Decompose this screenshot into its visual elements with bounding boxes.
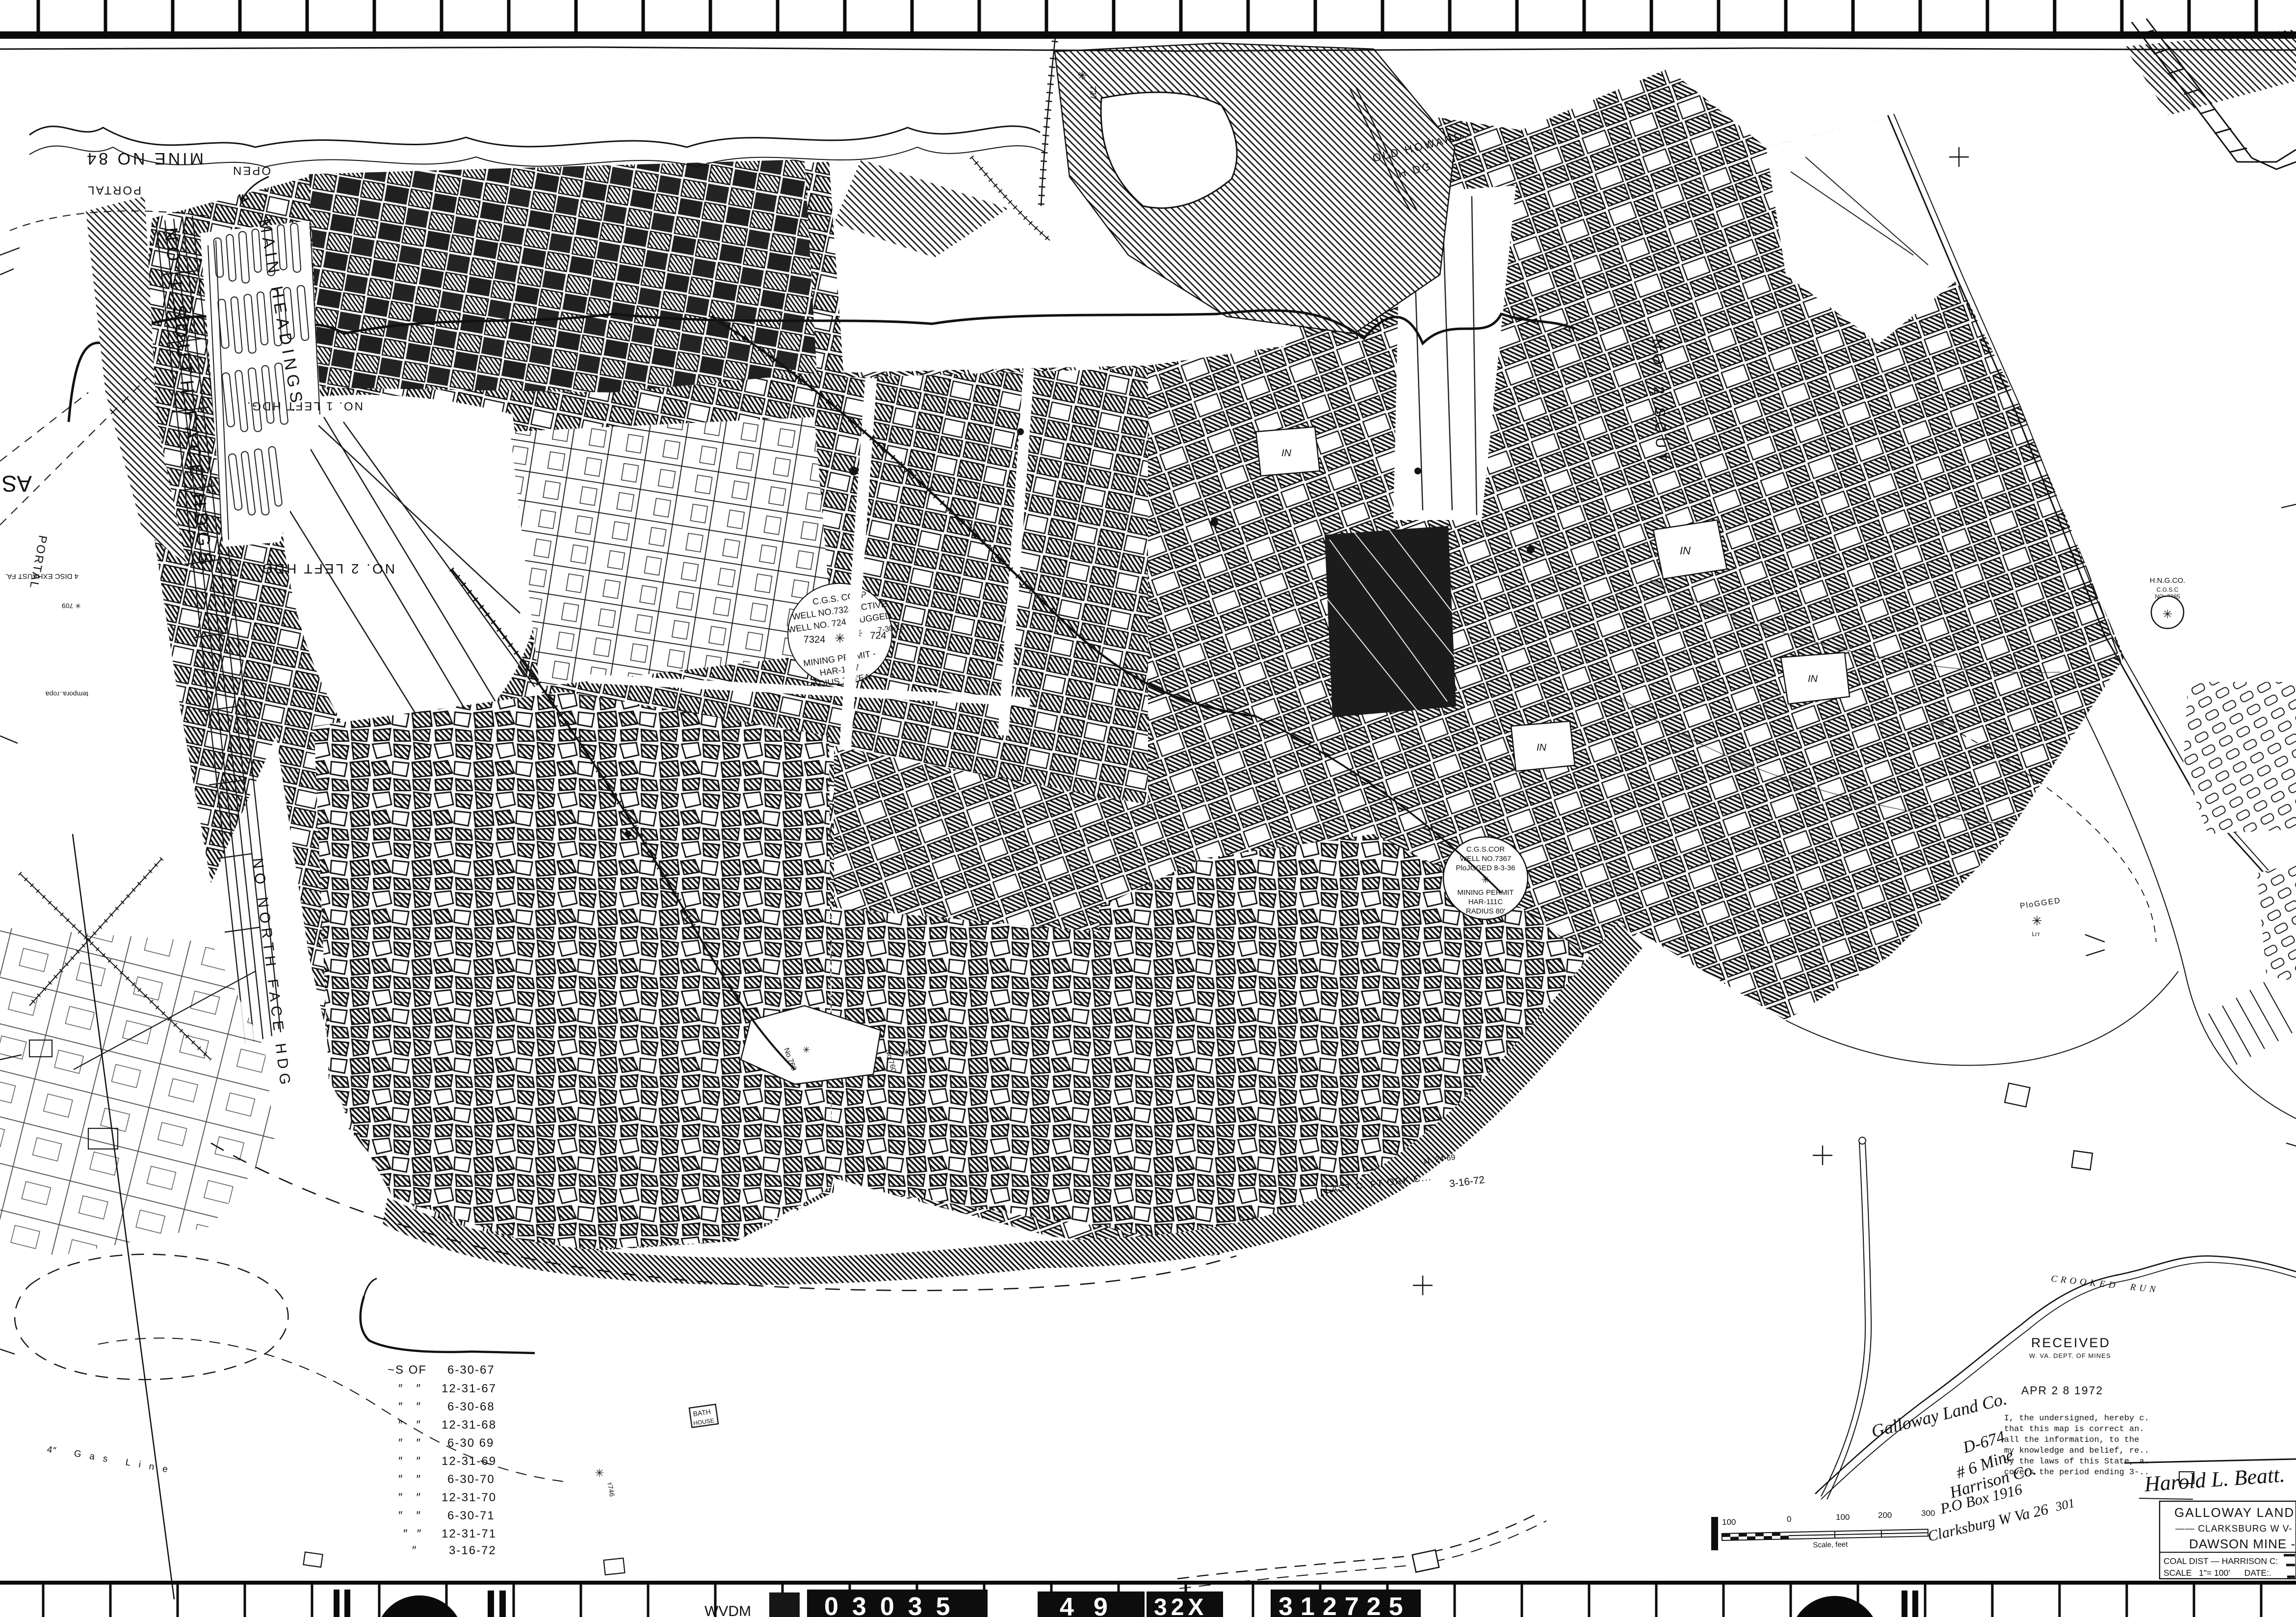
- svg-text:12-31-71: 12-31-71: [442, 1527, 496, 1540]
- svg-text:0: 0: [1787, 1514, 1791, 1524]
- svg-text:IN: IN: [1537, 742, 1547, 753]
- svg-text:NO. 1 LEFT HDG.: NO. 1 LEFT HDG.: [246, 399, 363, 413]
- svg-text:724: 724: [870, 630, 886, 641]
- svg-text:300: 300: [1921, 1509, 1935, 1518]
- svg-text:″ ″: ″ ″: [398, 1382, 421, 1395]
- svg-text:″ ″: ″ ″: [398, 1400, 421, 1413]
- svg-text:✳: ✳: [2163, 608, 2172, 621]
- svg-text:✳: ✳: [803, 1045, 810, 1055]
- svg-text:WVDM: WVDM: [704, 1603, 751, 1617]
- svg-text:DAWSON MINE - 6: DAWSON MINE - 6: [2189, 1537, 2296, 1551]
- svg-text:7324: 7324: [804, 634, 826, 645]
- svg-text:IN: IN: [1680, 545, 1691, 557]
- svg-text:″ ″: ″ ″: [398, 1491, 421, 1504]
- svg-text:6-30-70: 6-30-70: [447, 1473, 495, 1486]
- svg-text:″ ″: ″ ″: [398, 1473, 421, 1486]
- svg-text:6-30-71: 6-30-71: [447, 1509, 495, 1522]
- svg-text:″ ″: ″ ″: [403, 1527, 422, 1540]
- svg-text:″ ″: ″ ″: [398, 1509, 421, 1522]
- svg-text:MINE NO 84: MINE NO 84: [84, 149, 204, 168]
- svg-text:3-16-72: 3-16-72: [449, 1544, 496, 1557]
- svg-text:✳ 709: ✳ 709: [62, 602, 81, 610]
- svg-text:PORTAL: PORTAL: [86, 183, 141, 197]
- svg-text:100: 100: [1722, 1517, 1736, 1527]
- svg-text:APR 2 8 1972: APR 2 8 1972: [2021, 1384, 2103, 1397]
- svg-text:4 DISC EXHAUST FA.: 4 DISC EXHAUST FA.: [5, 572, 78, 580]
- svg-text:″: ″: [412, 1544, 417, 1557]
- svg-text:″ ″: ″ ″: [398, 1436, 421, 1450]
- svg-text:covers the period ending 3-..: covers the period ending 3-..: [2004, 1468, 2149, 1477]
- svg-text:″ ″: ″ ″: [398, 1418, 421, 1432]
- svg-text:03035: 03035: [824, 1592, 964, 1617]
- svg-text:by the laws of this State, a.: by the laws of this State, a.: [2004, 1457, 2149, 1466]
- svg-text:HAR-111C: HAR-111C: [1468, 898, 1503, 906]
- svg-text:all the information, to the: all the information, to the: [2004, 1435, 2139, 1445]
- svg-text:OPEN: OPEN: [232, 164, 271, 177]
- svg-text:AS: AS: [2, 471, 32, 496]
- svg-text:tеmpоrа..гора: tеmpоrа..гора: [45, 690, 88, 698]
- svg-text:✳: ✳: [2032, 913, 2042, 928]
- svg-text:6-30-68: 6-30-68: [447, 1400, 495, 1413]
- svg-text:✳: ✳: [903, 1047, 911, 1058]
- svg-text:100: 100: [1836, 1513, 1850, 1522]
- svg-text:COAL DIST — HARRISON C:: COAL DIST — HARRISON C:: [2164, 1556, 2278, 1566]
- svg-text:12-31-68: 12-31-68: [442, 1418, 496, 1432]
- svg-text:6-30 69: 6-30 69: [447, 1436, 494, 1450]
- svg-text:RECEIVED: RECEIVED: [2031, 1335, 2111, 1350]
- svg-text:GALLOWAY LAND: GALLOWAY LAND: [2174, 1505, 2295, 1520]
- svg-text:NO. 2 LEFT HDG.: NO. 2 LEFT HDG.: [254, 561, 395, 576]
- svg-text:that this map is correct an.: that this map is correct an.: [2004, 1425, 2144, 1434]
- svg-text:IN: IN: [1808, 674, 1818, 684]
- svg-text:″ ″: ″ ″: [398, 1455, 421, 1468]
- svg-text:Scale, feet: Scale, feet: [1813, 1540, 1848, 1549]
- svg-text:✳: ✳: [835, 631, 845, 646]
- svg-text:RADIUS 80′: RADIUS 80′: [1466, 907, 1506, 915]
- svg-text:✳: ✳: [595, 1467, 604, 1479]
- svg-text:12-31-67: 12-31-67: [442, 1382, 496, 1395]
- svg-text:200: 200: [1878, 1511, 1892, 1520]
- svg-text:49: 49: [1060, 1593, 1127, 1617]
- svg-text:IN: IN: [1281, 448, 1292, 459]
- svg-text:727: 727: [1088, 85, 1098, 100]
- svg-text:6-30-67: 6-30-67: [447, 1363, 495, 1377]
- svg-text:my knowledge and belief, re..: my knowledge and belief, re..: [2004, 1446, 2149, 1456]
- svg-text:32X: 32X: [1154, 1594, 1207, 1617]
- svg-text:I, the undersigned, hereby c.: I, the undersigned, hereby c.: [2004, 1414, 2149, 1423]
- svg-text:4″: 4″: [46, 1444, 57, 1456]
- svg-text:12-31-70: 12-31-70: [442, 1491, 496, 1504]
- svg-text:H.N.G.CO.: H.N.G.CO.: [2150, 576, 2186, 585]
- svg-text:W. VA. DEPT. OF MINES: W. VA. DEPT. OF MINES: [2029, 1352, 2111, 1359]
- svg-text:PlоJGGED 8-3-36: PlоJGGED 8-3-36: [1456, 864, 1515, 872]
- svg-text:MINING PERMIT: MINING PERMIT: [1458, 888, 1514, 897]
- svg-text:C.G.S.C: C.G.S.C: [2157, 586, 2179, 593]
- svg-text:C.G.S.COR: C.G.S.COR: [1466, 845, 1505, 854]
- svg-text:312725: 312725: [1278, 1592, 1411, 1617]
- svg-text:Lгт: Lгт: [2032, 931, 2040, 938]
- svg-text:SCALE 1"= 100′ DATE:.: SCALE 1"= 100′ DATE:.: [2164, 1568, 2271, 1578]
- svg-text:—— CLARKSBURG W V-: —— CLARKSBURG W V-: [2175, 1524, 2293, 1534]
- svg-text:✳: ✳: [1077, 69, 1087, 82]
- svg-text:~S OF: ~S OF: [388, 1363, 427, 1377]
